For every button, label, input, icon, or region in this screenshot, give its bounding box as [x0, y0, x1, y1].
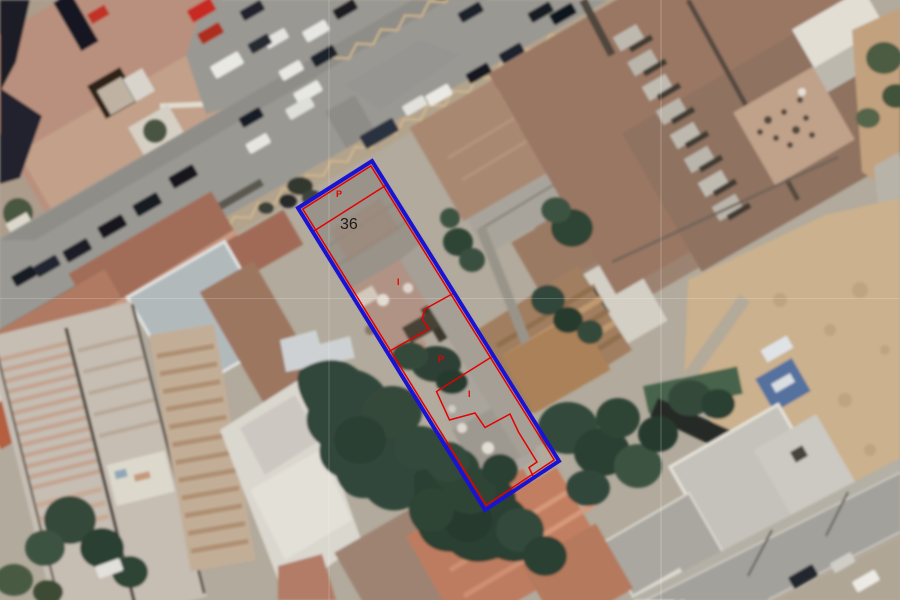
svg-text:P: P — [336, 189, 342, 199]
svg-text:I: I — [397, 277, 400, 287]
svg-text:36: 36 — [340, 216, 358, 233]
svg-text:I: I — [468, 389, 471, 399]
svg-text:P: P — [438, 354, 444, 364]
